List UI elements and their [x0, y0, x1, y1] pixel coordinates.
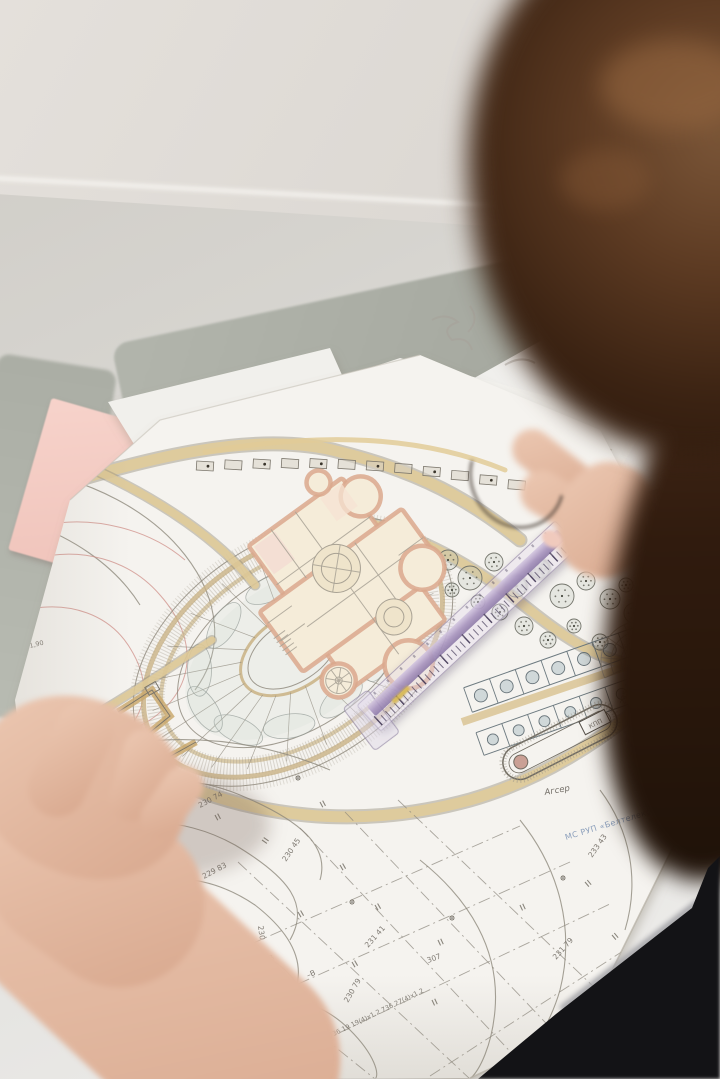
hair-highlight-2 [560, 150, 650, 210]
photo-scene: 232,00 231,90 [0, 0, 720, 1079]
